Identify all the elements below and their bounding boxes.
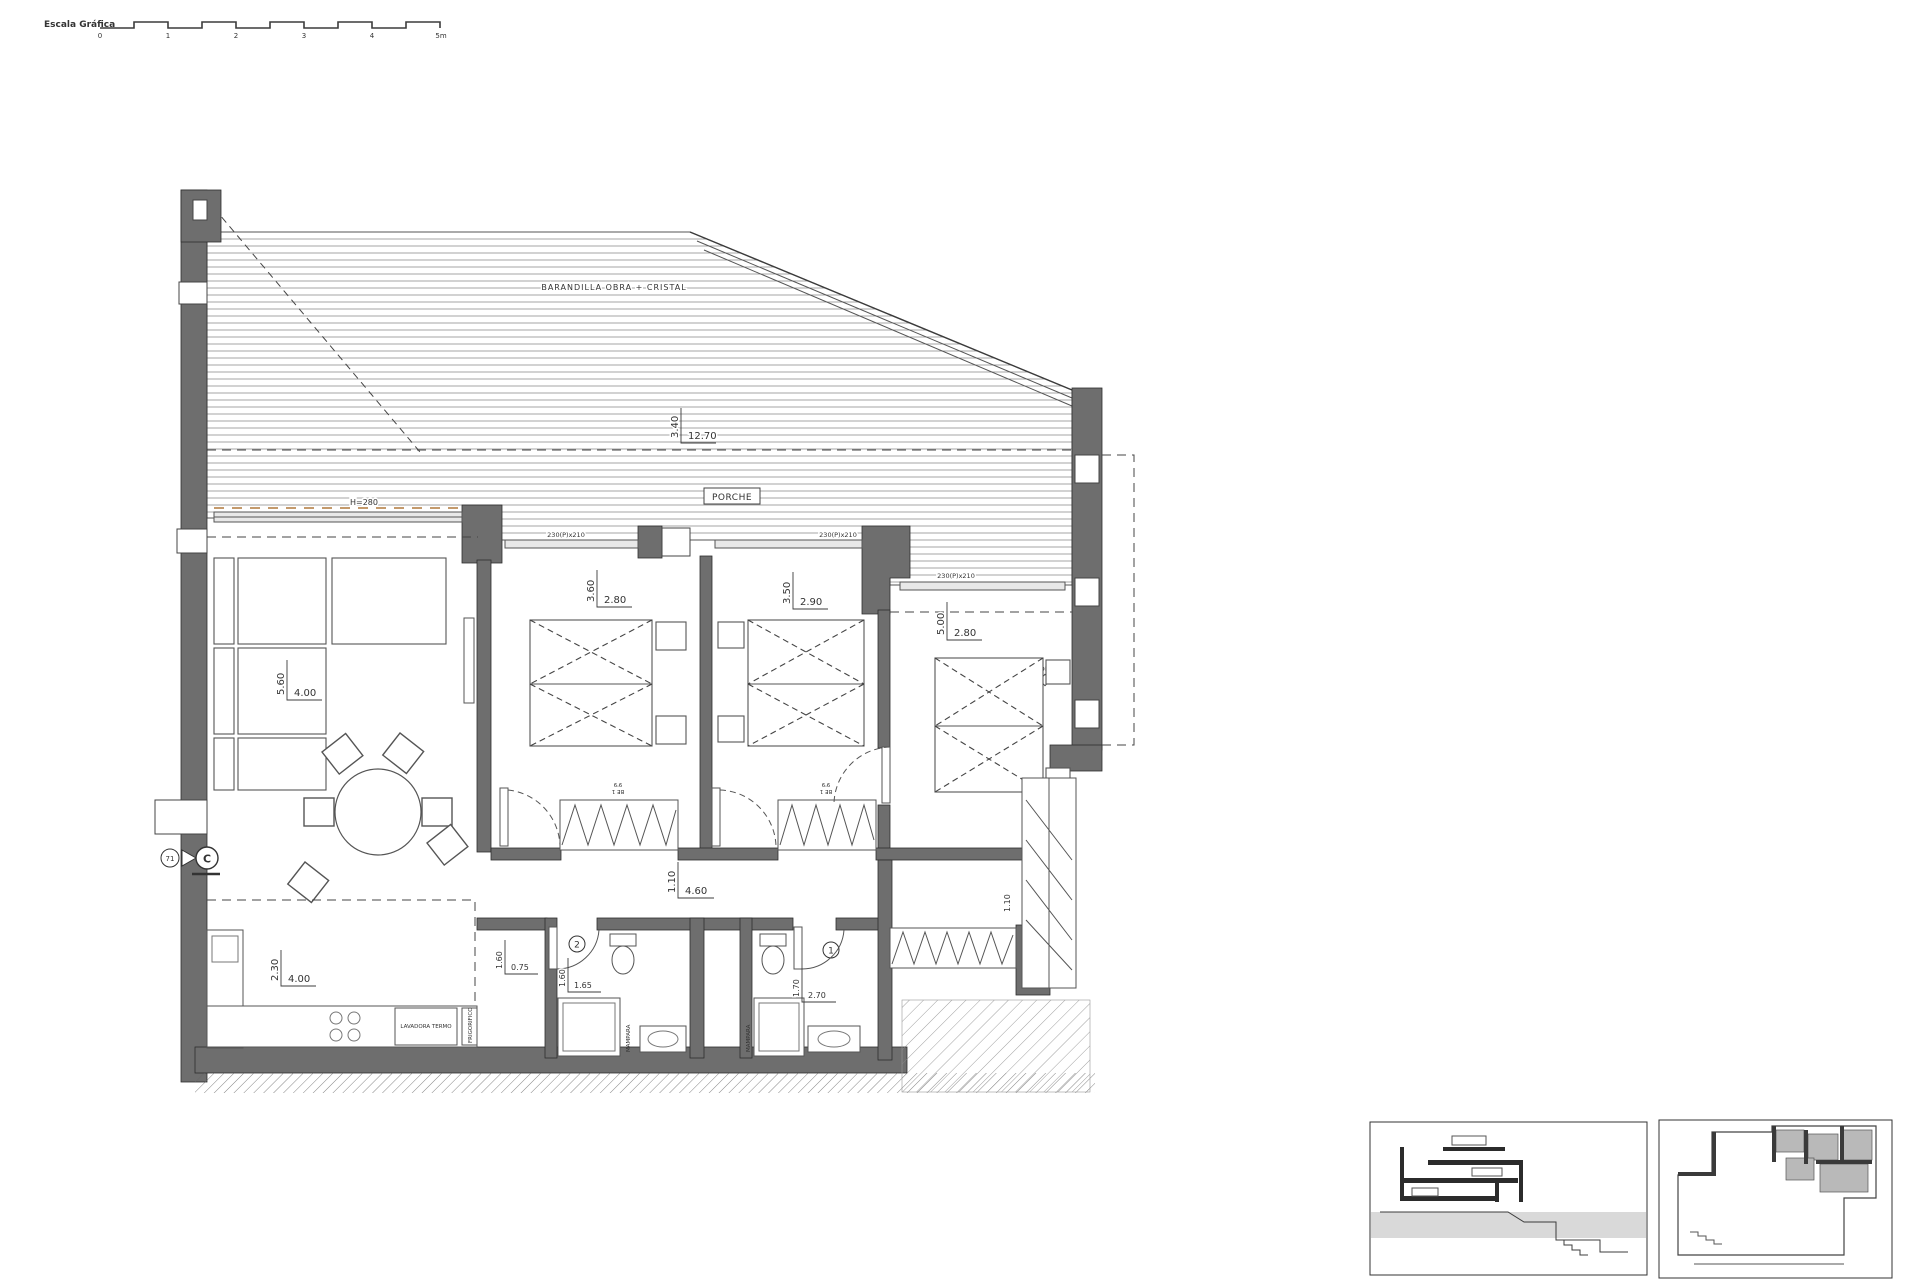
bed1 (530, 620, 686, 746)
kitchen-appliance-1-label: LAVADORA TERMO (400, 1024, 452, 1030)
floorplan-page: Escala Gráfica 0 1 2 3 4 5m BARANDILLA O… (0, 0, 1920, 1280)
railing-label: BARANDILLA OBRA + CRISTAL (541, 283, 686, 292)
pillar-bed2-bed3 (862, 526, 910, 614)
bath2-dim-horizontal: 1.65 (574, 981, 592, 990)
bedroom-1: 3.60 2.80 BE 1 9'9 (500, 570, 686, 850)
right-wall-window-2 (1075, 578, 1099, 606)
nook-dim-horizontal: 0.75 (511, 963, 529, 972)
kitchen-sink (212, 936, 238, 962)
porch-dim-vertical: 3.40 (670, 416, 681, 438)
bathroom-1: 1 MAMPARA 1.70 2.70 (746, 927, 860, 1056)
adjacent-hatch-block (902, 1000, 1090, 1092)
living-dim-vertical: 5.60 (276, 673, 287, 695)
right-exterior-wall (1072, 388, 1102, 750)
living-room: 5.60 4.00 (207, 537, 478, 1047)
bed3-dim-horizontal: 2.80 (954, 628, 976, 639)
bed1-door-leaf (500, 788, 508, 846)
scale-tick: 4 (370, 32, 375, 40)
bed1-dim-vertical: 3.60 (586, 580, 597, 602)
wardrobe-bed2-label2: 9'9 (821, 781, 830, 787)
section-ground-band (1371, 1212, 1646, 1238)
section-marker-letter: C (203, 853, 211, 866)
bed3-window-label: 230(P)x210 (937, 572, 975, 580)
bed3-window (900, 582, 1065, 590)
wall-right-step (1050, 745, 1102, 771)
living-slider-label: H=280 (350, 498, 378, 507)
dining-table-top (335, 769, 421, 855)
bed3-door-leaf (882, 747, 890, 803)
laundry-dim-vertical: 1.10 (1003, 894, 1012, 912)
scale-tick: 3 (302, 32, 306, 40)
bathroom-2: 2 MAMPARA 1.60 1.65 (549, 927, 686, 1056)
porch-dim-horizontal: 12.70 (688, 431, 717, 442)
tv-cabinet (464, 618, 474, 703)
bed2-window-label: 230(P)x210 (819, 531, 857, 539)
hall-dim-horizontal: 4.60 (685, 886, 707, 897)
wardrobe-bed1-label2: 9'9 (613, 781, 622, 787)
hall-dim-vertical: 1.10 (667, 871, 678, 893)
bed2-door-leaf (712, 788, 720, 846)
kitchen-appliance-2-label: FRIGORIFICO (468, 1007, 474, 1043)
left-exterior-wall (181, 190, 207, 1082)
wardrobe-bed2-label1: BE 1 (820, 788, 833, 794)
kitchen-dim-horizontal: 4.00 (288, 974, 310, 985)
scale-bar-ticks: 0 1 2 3 4 5m (98, 32, 447, 40)
bed2 (718, 620, 864, 746)
bath2-number: 2 (574, 941, 580, 951)
nook-dim-vertical: 1.60 (495, 951, 504, 969)
bath1-shower-label: MAMPARA (746, 1024, 752, 1052)
wall-bed3-stub (878, 805, 890, 852)
kitchen: LAVADORA TERMO FRIGORIFICO 2.30 4.00 (207, 930, 477, 1048)
wardrobe-bed2: BE 1 9'9 (778, 781, 876, 850)
bath2-toilet (610, 934, 636, 974)
pillar-bed1-bed2 (638, 526, 662, 558)
bed1-bed2-window-box (662, 528, 690, 556)
kitchen-dim-vertical: 2.30 (270, 959, 281, 981)
section-marker-number: 71 (166, 855, 175, 863)
pillar-living-bed1 (462, 505, 502, 563)
wall-hall-bath2 (477, 918, 547, 930)
scale-bar: Escala Gráfica 0 1 2 3 4 5m (44, 20, 447, 40)
right-wall-window-1 (1075, 455, 1099, 483)
bath1-door-leaf (794, 927, 802, 969)
wall-bed2-bottom (678, 848, 778, 860)
wall-bed2-bed3 (878, 610, 890, 748)
left-wall-window-3 (155, 800, 207, 834)
bath1-sink (808, 1026, 860, 1052)
chimney-flue (193, 200, 207, 220)
bath2-shower-label: MAMPARA (626, 1024, 632, 1052)
bath1-shower: MAMPARA (746, 998, 804, 1056)
bed1-dim-horizontal: 2.80 (604, 595, 626, 606)
bath2-door-leaf (549, 927, 557, 969)
bed3-dim-vertical: 5.00 (936, 613, 947, 635)
scale-tick: 2 (234, 32, 238, 40)
bath1-dim-horizontal: 2.70 (808, 991, 826, 1000)
section-inset (1370, 1122, 1647, 1275)
left-wall-window-1 (179, 282, 207, 304)
wall-bed1-bed2 (700, 556, 712, 852)
left-wall-window-2 (177, 529, 207, 553)
right-dashed-extension (1102, 455, 1134, 745)
bath2-sink (640, 1026, 686, 1052)
bed2-window (715, 540, 862, 548)
right-wall-window-3 (1075, 700, 1099, 728)
bath2-dim-vertical: 1.60 (558, 969, 567, 987)
scale-bar-steps (100, 22, 440, 28)
bed2-door-arc (720, 790, 776, 846)
wardrobe-bed1-label1: BE 1 (612, 788, 625, 794)
bed1-window-label: 230(P)x210 (547, 531, 585, 539)
scale-tick: 1 (166, 32, 170, 40)
wardrobe-bed3 (890, 928, 1016, 968)
wall-bath-divider (690, 918, 704, 1058)
floorplan-drawing: Escala Gráfica 0 1 2 3 4 5m BARANDILLA O… (0, 0, 1920, 1280)
scale-tick: 5m (435, 32, 446, 40)
wall-bed1-bottom (491, 848, 561, 860)
porch-label: PORCHE (712, 493, 752, 503)
bed2-dim-horizontal: 2.90 (800, 597, 822, 608)
bedroom-2: 3.50 2.90 BE 1 9'9 (712, 572, 876, 850)
wardrobe-bed1: BE 1 9'9 (560, 781, 678, 850)
bed1-window (505, 540, 638, 548)
wall-bed3-bottom (876, 848, 1022, 860)
bath1-dim-vertical: 1.70 (792, 979, 801, 997)
bath1-toilet (760, 934, 786, 974)
bed1-door-arc (508, 790, 560, 846)
bed3 (935, 658, 1070, 792)
wall-living-bed1 (477, 560, 491, 852)
key-plan-inset (1659, 1120, 1892, 1278)
bed2-dim-vertical: 3.50 (782, 582, 793, 604)
scale-tick: 0 (98, 32, 102, 40)
living-dim-horizontal: 4.00 (294, 688, 316, 699)
